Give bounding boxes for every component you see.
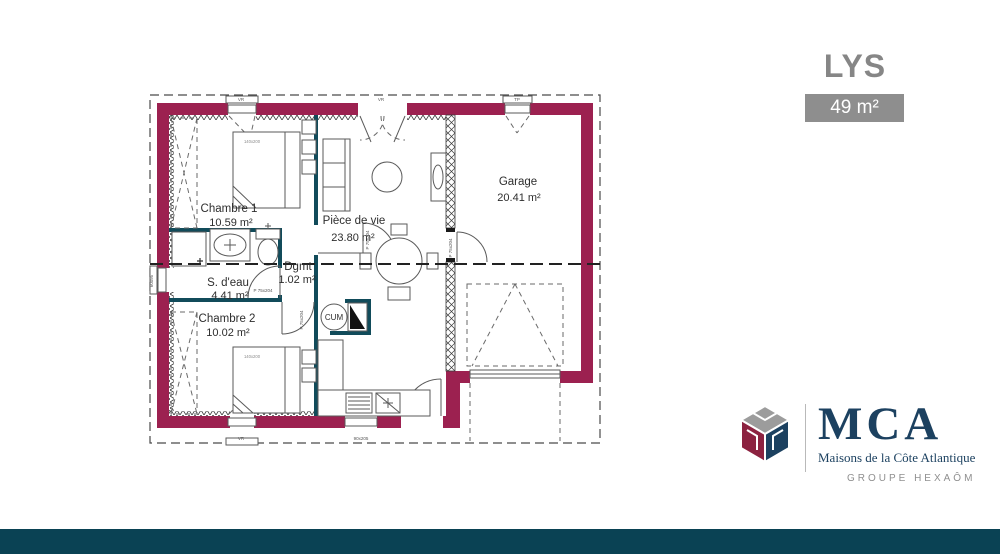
room-area-garage: 20.41 m²: [497, 192, 541, 204]
door-label-sdeau: P 75x204: [254, 288, 273, 293]
room-area-sdeau: 4.41 m²: [211, 290, 249, 302]
room-label-chambre2: Chambre 2: [199, 313, 256, 325]
room-area-chambre2: 10.02 m²: [206, 327, 250, 339]
room-label-piece-de-vie: Pièce de vie: [323, 215, 386, 227]
room-area-chambre1: 10.59 m²: [209, 217, 253, 229]
furniture-kitchen: [318, 287, 430, 416]
mca-logo: MCA Maisons de la Côte Atlantique GROUPE…: [737, 402, 975, 484]
exterior-walls: [157, 103, 593, 428]
surface-badge-label: 49 m²: [830, 97, 879, 119]
room-label-dgmt: Dgmt: [284, 261, 312, 273]
bed1-size-label: 140x200: [244, 139, 261, 144]
room-area-dgmt: 1.02 m²: [278, 274, 316, 286]
logo-divider: [805, 404, 806, 472]
window-label-top3: TP: [514, 97, 520, 102]
footer-bar: [0, 529, 1000, 554]
door-label-hall: P 75x204: [365, 230, 370, 249]
window-label-top2: VR: [378, 97, 385, 102]
window-label-bottom2: 90x205: [354, 436, 369, 441]
mca-cube-icon: [737, 402, 793, 466]
logo-tagline: Maisons de la Côte Atlantique: [818, 450, 975, 466]
door-label-garage: P 75x204: [448, 238, 453, 257]
logo-group-name: GROUPE HEXAÔM: [818, 473, 975, 484]
page: Chambre 1 10.59 m² Pièce de vie 23.80 m²…: [0, 0, 1000, 554]
surface-badge: 49 m²: [805, 94, 904, 122]
room-label-sdeau: S. d'eau: [207, 277, 249, 289]
logo-initials: MCA: [818, 402, 975, 446]
window-label-left: 60x95: [149, 274, 154, 287]
window-label-top1: VR: [238, 97, 245, 102]
model-title: LYS: [800, 48, 910, 85]
room-label-chambre1: Chambre 1: [201, 203, 258, 215]
bed2-size-label: 140x200: [244, 354, 261, 359]
door-label-chambre2: P 75x204: [299, 310, 304, 329]
water-heater-label: CUM: [325, 313, 344, 322]
room-label-garage: Garage: [499, 176, 537, 188]
window-label-bottom1: VR: [238, 436, 245, 441]
